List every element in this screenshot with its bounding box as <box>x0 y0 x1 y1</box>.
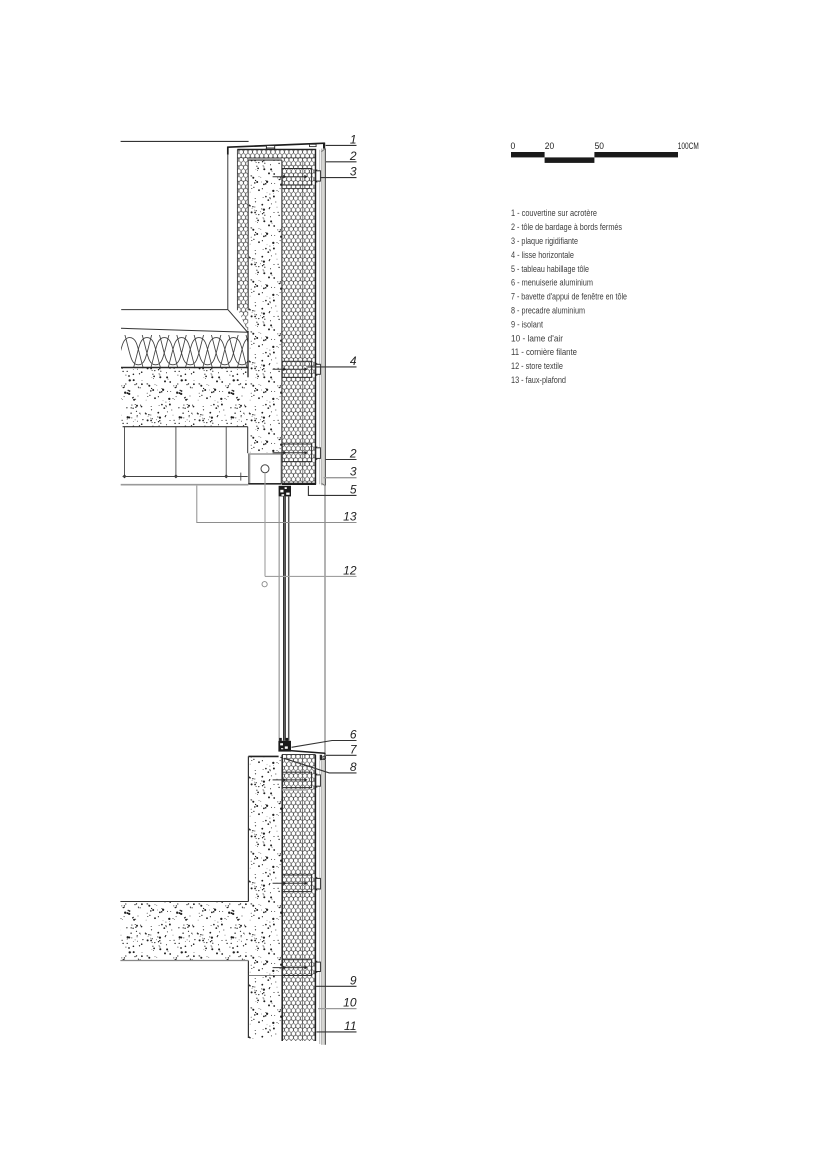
svg-text:1 - couvertine sur acrotère: 1 - couvertine sur acrotère <box>511 208 597 218</box>
svg-text:13: 13 <box>343 510 357 524</box>
svg-text:2: 2 <box>349 447 357 461</box>
svg-text:5: 5 <box>350 482 357 496</box>
svg-text:10: 10 <box>343 996 357 1010</box>
svg-text:12: 12 <box>343 563 357 577</box>
svg-text:10 - lame d'air: 10 - lame d'air <box>511 333 563 343</box>
svg-text:9 - isolant: 9 - isolant <box>511 319 543 329</box>
svg-text:50: 50 <box>595 141 604 152</box>
svg-text:4 - lisse horizontale: 4 - lisse horizontale <box>511 250 574 260</box>
svg-text:0: 0 <box>511 141 516 152</box>
svg-text:8 - precadre aluminium: 8 - precadre aluminium <box>511 306 585 316</box>
svg-text:6 - menuiserie aluminium: 6 - menuiserie aluminium <box>511 278 593 288</box>
svg-text:6: 6 <box>350 727 357 741</box>
svg-text:3 - plaque rigidifiante: 3 - plaque rigidifiante <box>511 236 578 246</box>
svg-text:3: 3 <box>350 465 357 479</box>
svg-text:1: 1 <box>350 132 357 146</box>
svg-text:7 - bavette d'appui de fenêtre: 7 - bavette d'appui de fenêtre en tôle <box>511 292 627 302</box>
svg-text:11 - cornière filante: 11 - cornière filante <box>511 347 577 357</box>
svg-text:4: 4 <box>350 354 357 368</box>
svg-text:8: 8 <box>350 760 357 774</box>
svg-text:2 - tôle de bardage à bords fe: 2 - tôle de bardage à bords fermés <box>511 222 622 232</box>
svg-text:20: 20 <box>545 141 554 152</box>
svg-text:3: 3 <box>350 165 357 179</box>
svg-text:5 - tableau habillage tôle: 5 - tableau habillage tôle <box>511 264 589 274</box>
svg-text:9: 9 <box>350 973 357 987</box>
svg-text:13 - faux-plafond: 13 - faux-plafond <box>511 375 566 385</box>
svg-text:100CM: 100CM <box>678 141 699 152</box>
svg-text:2: 2 <box>349 149 357 163</box>
svg-text:11: 11 <box>344 1019 356 1033</box>
svg-text:12 - store textile: 12 - store textile <box>511 361 563 371</box>
